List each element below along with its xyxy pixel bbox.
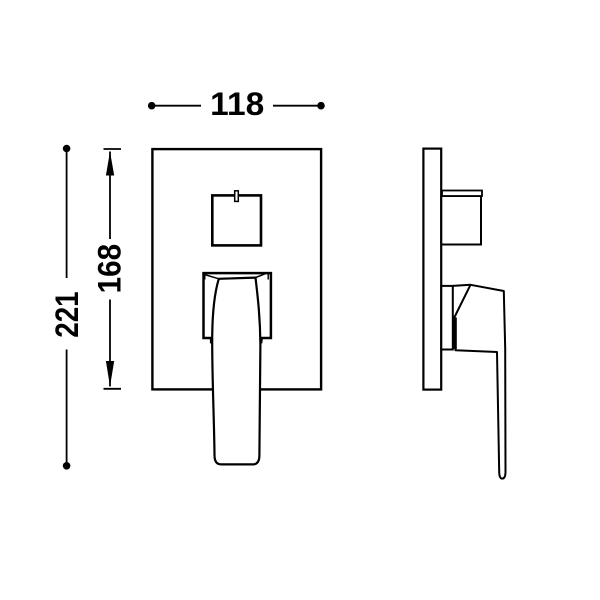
svg-text:168: 168	[91, 244, 127, 294]
svg-text:118: 118	[210, 86, 264, 122]
svg-text:221: 221	[49, 291, 85, 337]
